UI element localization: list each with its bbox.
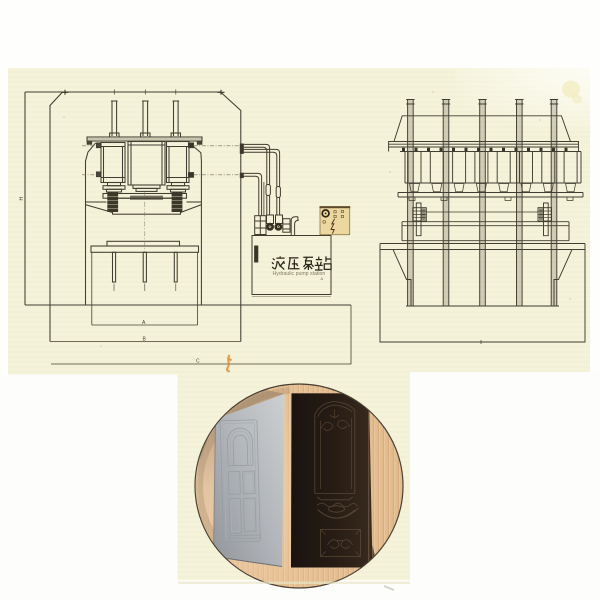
svg-text:H: H: [19, 197, 25, 201]
svg-text:C: C: [196, 359, 200, 365]
svg-text:Hydraulic pump station: Hydraulic pump station: [273, 271, 326, 277]
